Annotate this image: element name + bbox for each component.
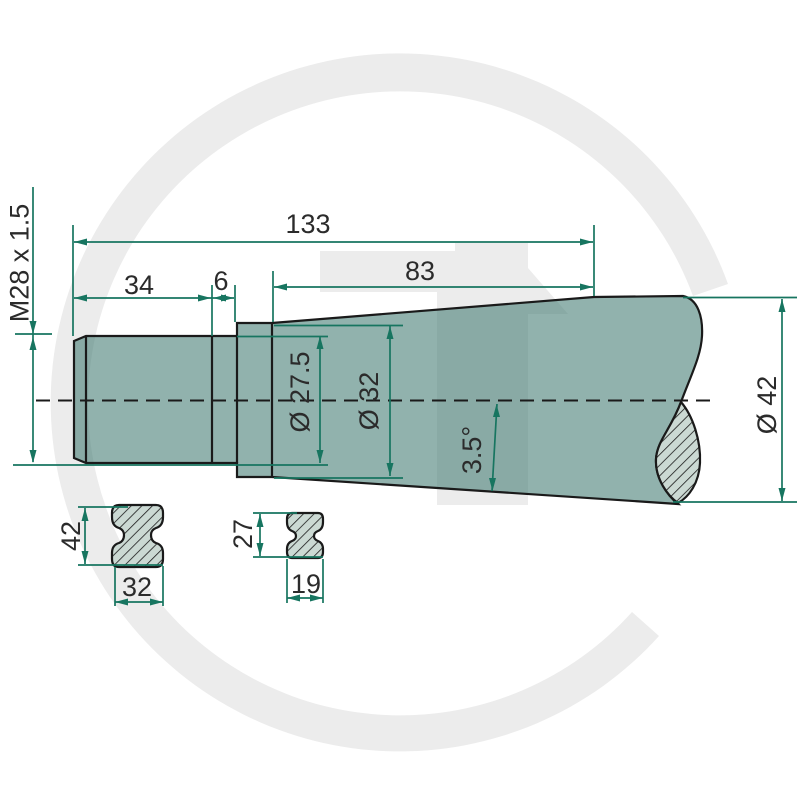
label-section-small-height: 27	[228, 519, 258, 549]
label-total-length: 133	[285, 209, 330, 239]
label-taper-angle: 3.5°	[457, 426, 487, 474]
label-body-length: 83	[405, 256, 435, 286]
label-neck-diameter: Ø 27.5	[285, 351, 315, 432]
label-body-diameter: Ø 42	[752, 376, 782, 435]
label-section-large-height: 42	[56, 521, 86, 551]
technical-drawing-canvas: 133 34 6 83 M28 x 1.5 Ø 27.5 Ø 32 3.5° Ø…	[0, 0, 800, 800]
label-thread-length: 34	[124, 270, 154, 300]
tine-drawing-svg: 133 34 6 83 M28 x 1.5 Ø 27.5 Ø 32 3.5° Ø…	[0, 0, 800, 800]
cross-section-small	[287, 513, 323, 558]
label-neck-length: 6	[213, 266, 228, 296]
cross-section-large	[112, 505, 163, 567]
label-collar-diameter: Ø 32	[354, 372, 384, 431]
label-section-large-width: 32	[122, 572, 152, 602]
label-section-small-width: 19	[291, 569, 321, 599]
part-views	[36, 296, 716, 567]
label-thread-spec: M28 x 1.5	[5, 204, 35, 323]
